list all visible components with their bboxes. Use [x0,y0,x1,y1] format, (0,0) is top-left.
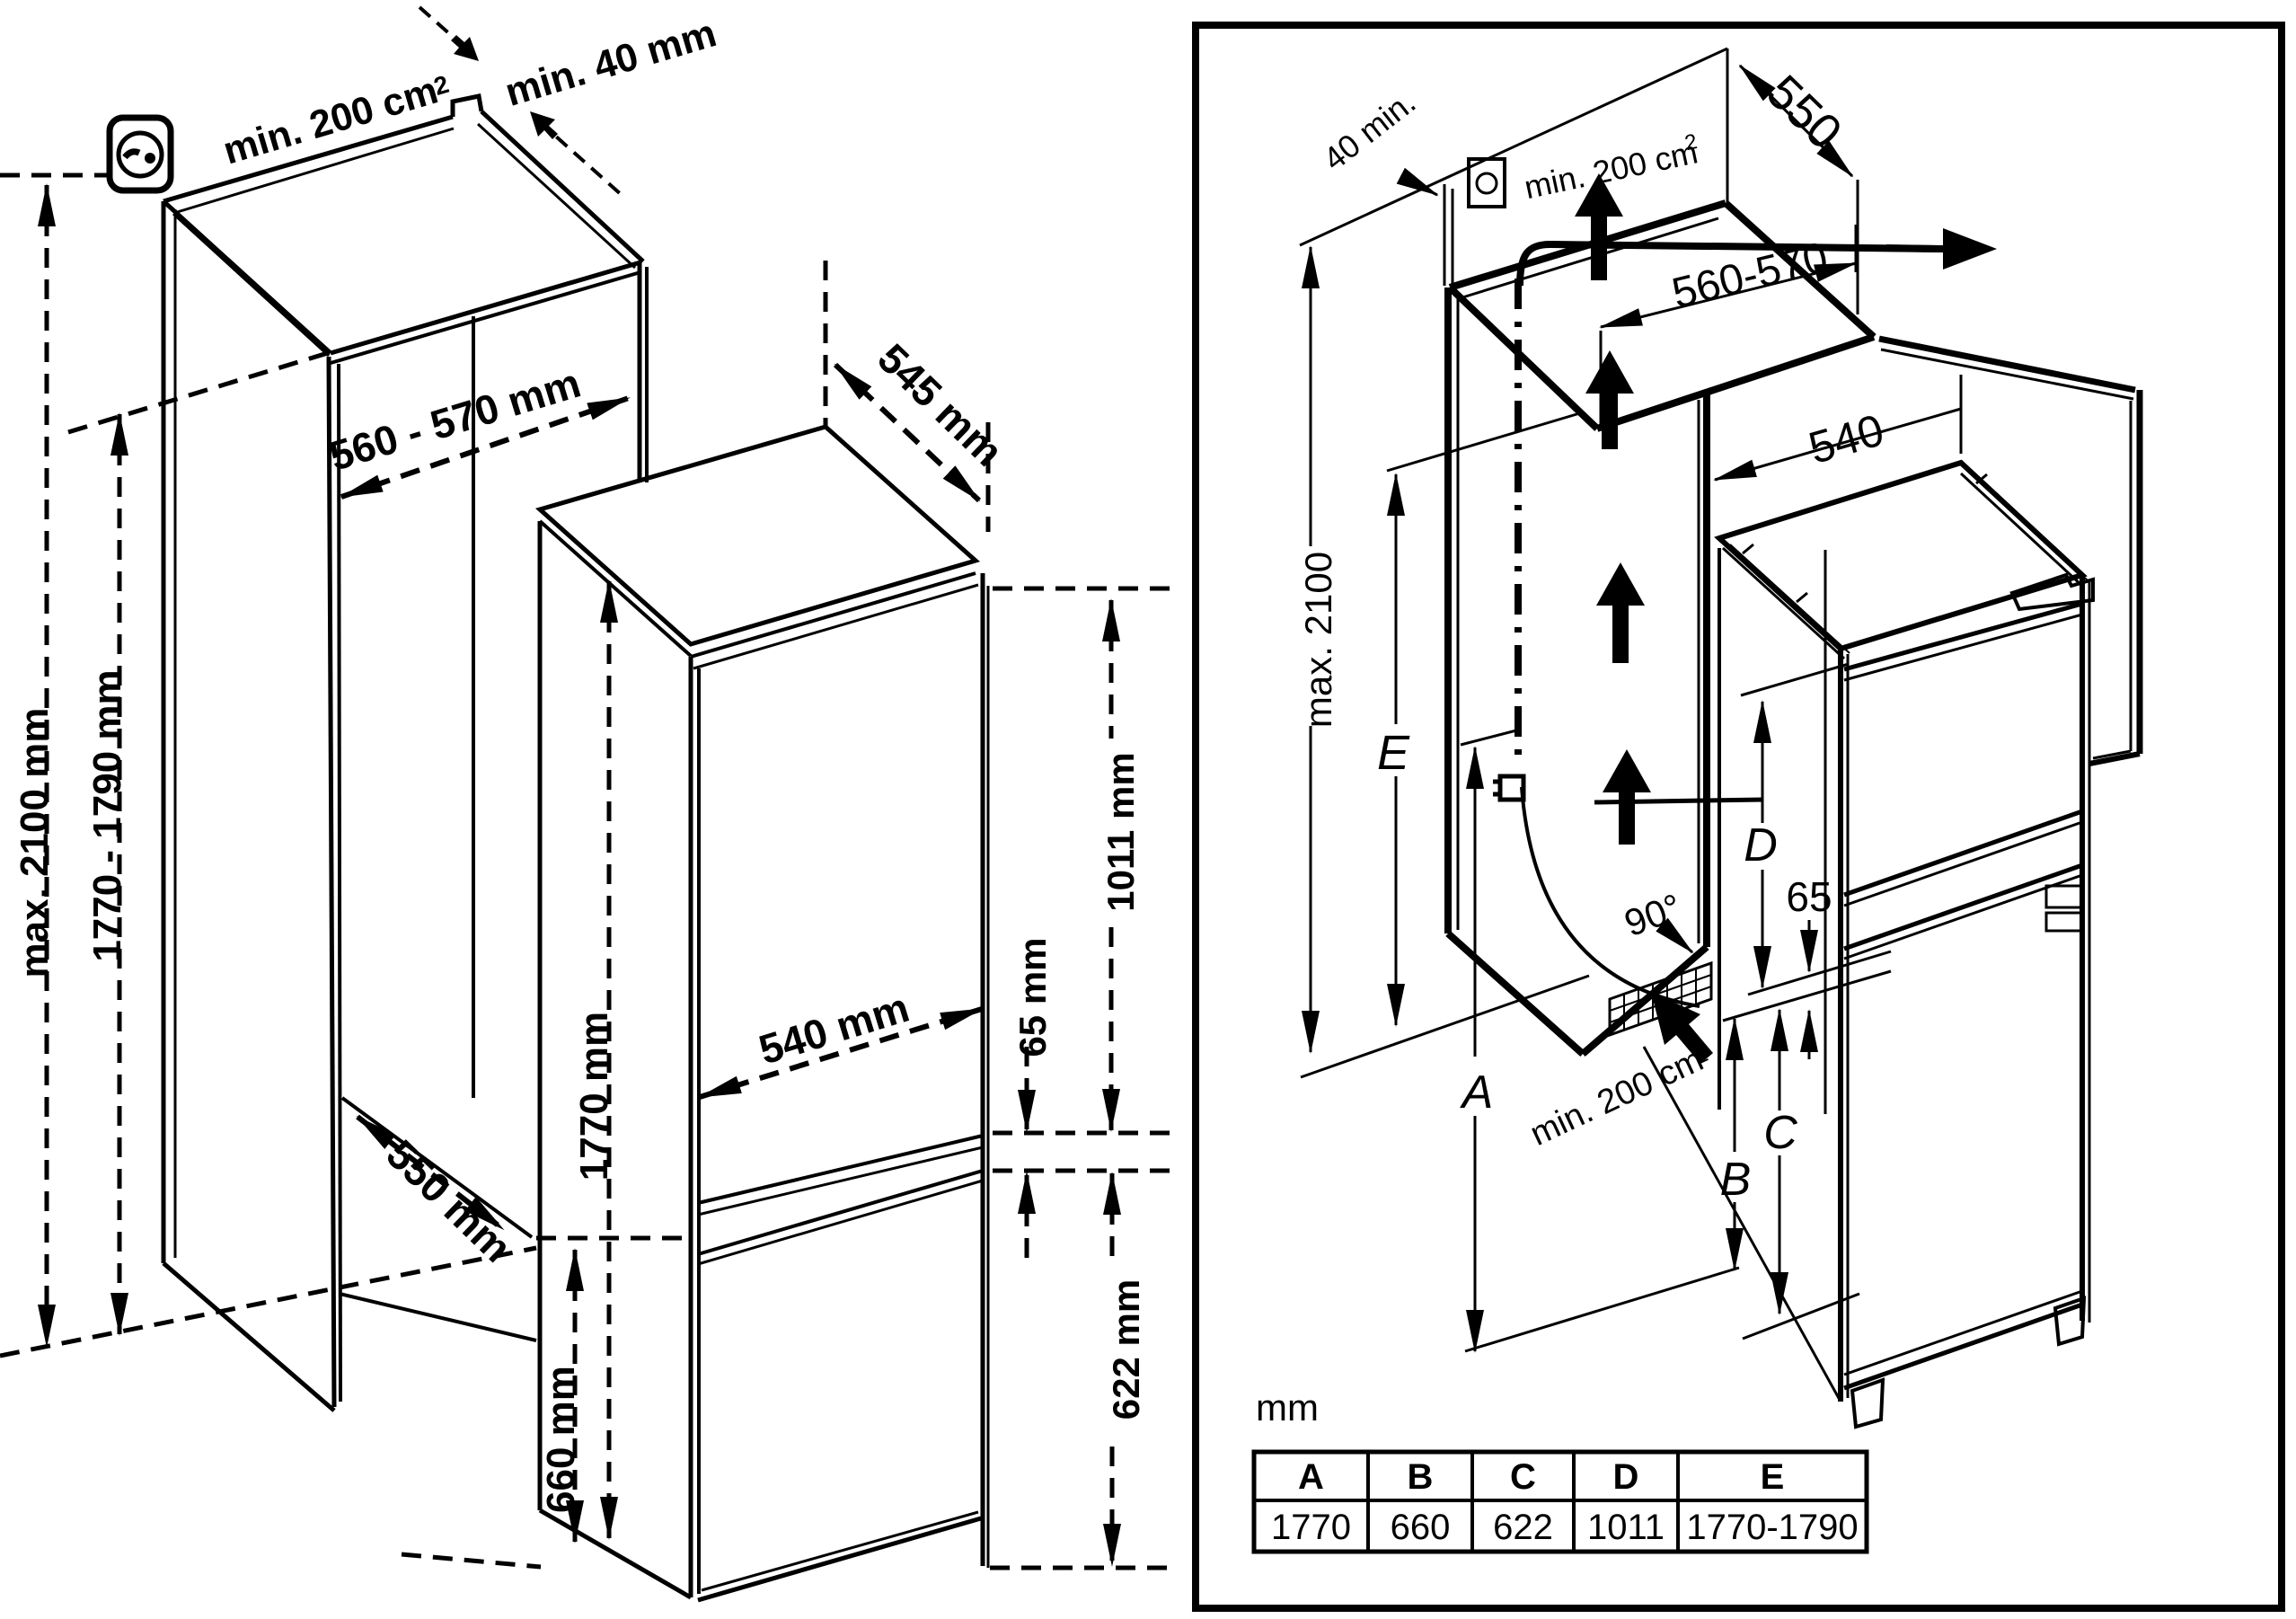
svg-text:1770 - 1790 mm: 1770 - 1790 mm [85,669,129,961]
svg-text:max. 2100: max. 2100 [1297,552,1339,728]
svg-text:1011 mm: 1011 mm [1099,752,1142,911]
svg-text:1770 mm: 1770 mm [572,1012,616,1181]
svg-text:E: E [1761,1457,1785,1497]
svg-text:1770: 1770 [1271,1508,1351,1547]
svg-text:A: A [1298,1457,1324,1497]
svg-text:mm: mm [1256,1386,1319,1429]
svg-text:65 mm: 65 mm [1011,937,1054,1057]
svg-text:C: C [1763,1107,1797,1159]
svg-text:1011: 1011 [1587,1508,1665,1547]
svg-text:660 mm: 660 mm [539,1366,583,1513]
svg-text:D: D [1744,819,1778,871]
svg-text:B: B [1720,1154,1752,1206]
svg-text:622 mm: 622 mm [1105,1279,1147,1420]
svg-text:B: B [1408,1457,1434,1497]
svg-text:622: 622 [1493,1508,1553,1547]
svg-text:1770-1790: 1770-1790 [1686,1508,1858,1547]
svg-text:E: E [1377,726,1410,780]
svg-text:65: 65 [1786,873,1832,920]
svg-text:max. 2100 mm: max. 2100 mm [13,708,57,978]
svg-text:D: D [1613,1457,1639,1497]
svg-text:A: A [1460,1066,1494,1119]
svg-text:660: 660 [1391,1508,1451,1547]
svg-text:C: C [1510,1457,1536,1497]
